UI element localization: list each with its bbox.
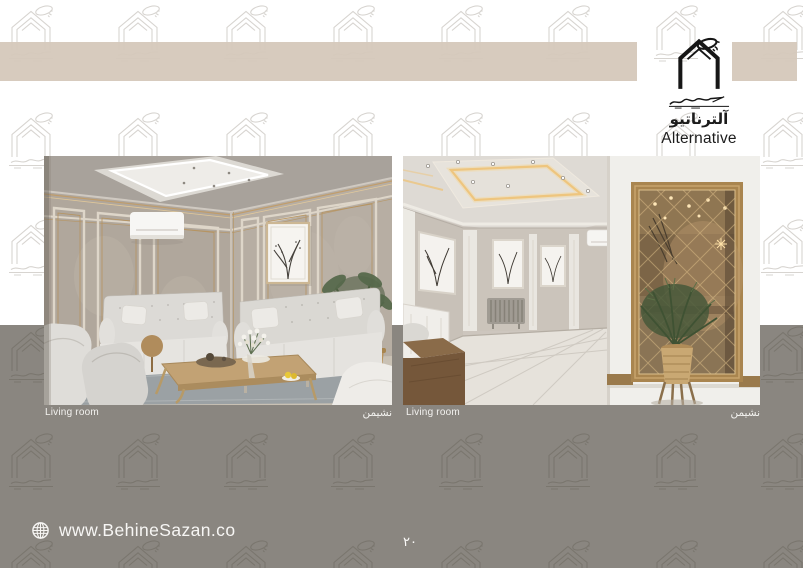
brand-name-english: Alternative: [661, 130, 736, 148]
photo-living-room-right: [403, 156, 760, 405]
caption-living-room-right-en: Living room: [406, 407, 460, 418]
header-band-left: [0, 42, 637, 81]
caption-living-room-left-fa: نشیمن: [362, 407, 392, 419]
page-number: ۲۰: [375, 534, 445, 550]
portfolio-page: آلترناتیو Alternative: [0, 0, 803, 568]
brand-logo: آلترناتیو Alternative: [647, 35, 751, 148]
photo-living-room-left: [44, 156, 392, 405]
caption-living-room-left-en: Living room: [45, 407, 99, 418]
house-logo-icon: [677, 35, 721, 91]
ac-unit: [130, 212, 184, 245]
website-url: www.BehineSazan.co: [59, 520, 235, 541]
signature-icon: [668, 95, 730, 109]
caption-living-room-right-fa: نشیمن: [730, 407, 760, 419]
website-footer: www.BehineSazan.co: [31, 520, 235, 541]
wall-artwork: [267, 223, 312, 286]
globe-icon: [31, 521, 50, 540]
brand-name-farsi: آلترناتیو: [670, 111, 729, 130]
